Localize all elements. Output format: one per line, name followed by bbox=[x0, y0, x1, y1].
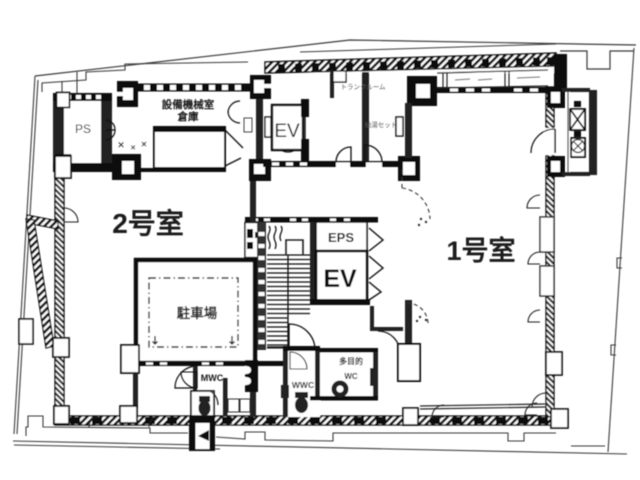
svg-text:MWC: MWC bbox=[201, 373, 224, 383]
svg-text:EPS: EPS bbox=[328, 230, 354, 245]
svg-text:✕: ✕ bbox=[117, 140, 125, 150]
svg-text:EV: EV bbox=[323, 265, 357, 293]
svg-text:WC: WC bbox=[344, 372, 358, 381]
svg-text:2号室: 2号室 bbox=[112, 207, 184, 239]
svg-text:EV: EV bbox=[274, 121, 300, 142]
svg-text:✕: ✕ bbox=[130, 145, 136, 152]
svg-text:✕: ✕ bbox=[141, 140, 148, 149]
svg-text:PS: PS bbox=[75, 122, 91, 136]
svg-text:駐車場: 駐車場 bbox=[177, 305, 218, 321]
svg-text:トランクルーム: トランクルーム bbox=[340, 83, 386, 91]
svg-text:1号室: 1号室 bbox=[446, 235, 515, 266]
svg-text:設備機械室: 設備機械室 bbox=[162, 98, 215, 111]
svg-text:倉庫: 倉庫 bbox=[177, 110, 199, 123]
svg-text:WWC: WWC bbox=[292, 380, 314, 390]
svg-text:給湯セット: 給湯セット bbox=[365, 120, 398, 129]
svg-text:多目的: 多目的 bbox=[339, 356, 363, 366]
